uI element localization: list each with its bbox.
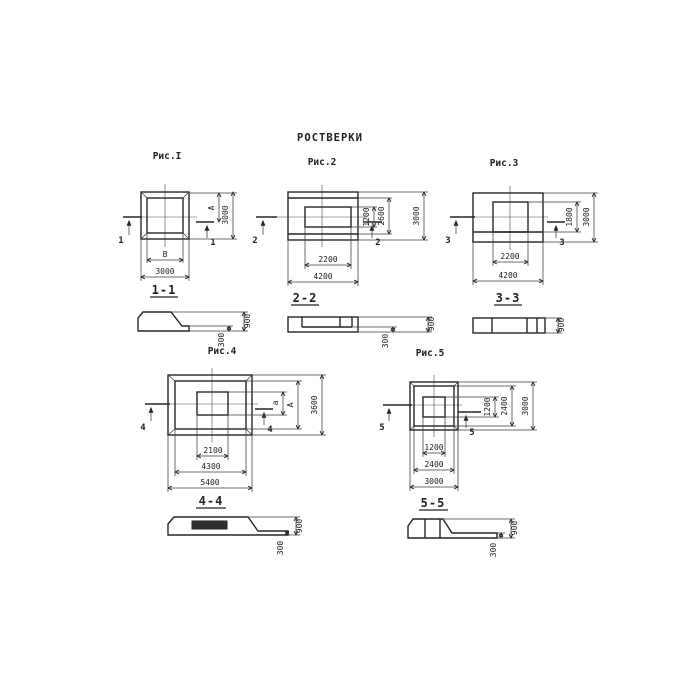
fig4-dim-inner-height: а xyxy=(271,400,280,405)
section-view-2-2: 900 300 xyxy=(288,317,436,349)
section2-dim-toe: 300 xyxy=(381,334,390,349)
sheet-title: РОСТВЕРКИ xyxy=(297,132,363,144)
fig3-cut-marker-right: 3 xyxy=(547,222,565,248)
fig3-dim-outer-height: 3000 xyxy=(582,207,591,226)
fig1-plan xyxy=(126,184,197,247)
fig4-cut-marker-right: 4 xyxy=(255,409,273,435)
fig4-label: Рис.4 xyxy=(208,346,237,357)
fig4-dimensions: а А 3600 2100 4300 5400 xyxy=(168,375,326,492)
bevel-line xyxy=(246,429,252,435)
bevel-line xyxy=(141,233,147,239)
fig3-cut-marker-left: 3 xyxy=(445,217,475,246)
section5-dim-height: 900 xyxy=(510,521,519,536)
fig4-section-label: 4-4 xyxy=(199,494,224,508)
bevel-line xyxy=(246,375,252,381)
section4-recess xyxy=(192,521,227,529)
section4-dim-height: 900 xyxy=(295,519,304,534)
fig1-label: Рис.I xyxy=(153,151,182,162)
fig5-dim-outer-height: 3000 xyxy=(521,396,530,415)
fig1-cut-marker-right: 1 xyxy=(196,222,216,248)
fig4-dim-mid-width: 4300 xyxy=(201,462,220,471)
section5-dim-toe: 300 xyxy=(489,543,498,558)
fig5-cut-number: 5 xyxy=(469,428,474,438)
section3-profile xyxy=(473,318,545,333)
fig2-dim-inner-width: 2200 xyxy=(318,255,337,264)
fig1-cut-number: 1 xyxy=(210,238,215,248)
grillage-drawing-sheet: РОСТВЕРКИ Рис.I 1 1 А xyxy=(0,0,700,700)
fig5-plan xyxy=(385,375,462,437)
fig2-label: Рис.2 xyxy=(308,157,337,168)
fig4-inner-contour xyxy=(197,392,228,415)
fig5-cut-marker-right: 5 xyxy=(458,412,481,438)
fig2-outer-contour xyxy=(288,192,358,240)
fig5-dim-outer-width: 3000 xyxy=(424,477,443,486)
bevel-line xyxy=(183,192,189,198)
fig4-dim-mid-height: А xyxy=(286,402,295,407)
fig4-dim-inner-width: 2100 xyxy=(203,446,222,455)
fig2-dim-outer-width: 4200 xyxy=(313,272,332,281)
fig2-cut-marker-left: 2 xyxy=(252,217,277,246)
fig4-cut-number: 4 xyxy=(267,425,273,435)
bevel-line xyxy=(168,429,175,435)
fig5-dim-inner-height: 1200 xyxy=(483,397,492,416)
fig5-section-label: 5-5 xyxy=(421,496,446,510)
fig5-cut-number: 5 xyxy=(379,423,384,433)
fig1-dim-inner-width: В xyxy=(163,250,168,259)
fig3-dimensions: 1800 3000 2200 4200 xyxy=(473,193,598,285)
fig2-dim-outer-height: 3000 xyxy=(412,206,421,225)
figure-1: Рис.I 1 1 А 3000 xyxy=(118,151,237,297)
fig1-dim-inner-height: А xyxy=(207,205,216,210)
section1-dim-height: 900 xyxy=(243,314,252,329)
fig1-dim-outer-height: 3000 xyxy=(221,205,230,224)
fig4-outer-contour xyxy=(168,375,252,435)
fig4-cut-marker-left: 4 xyxy=(140,404,170,433)
fig1-cut-marker-left: 1 xyxy=(118,217,142,246)
fig3-plan xyxy=(452,186,548,250)
fig3-cut-number: 3 xyxy=(559,238,564,248)
fig1-dim-outer-width: 3000 xyxy=(155,267,174,276)
section2-profile xyxy=(288,317,358,332)
fig2-cut-number: 2 xyxy=(375,238,380,248)
fig3-dim-inner-height: 1800 xyxy=(565,207,574,226)
fig4-mid-contour xyxy=(175,381,246,429)
fig4-dim-outer-height: 3600 xyxy=(310,395,319,414)
fig4-dim-outer-width: 5400 xyxy=(200,478,219,487)
section5-profile xyxy=(408,519,497,538)
fig3-label: Рис.3 xyxy=(490,158,519,169)
fig5-dim-mid-width: 2400 xyxy=(424,460,443,469)
section-view-1-1: 900 300 xyxy=(138,312,252,347)
figure-4: Рис.4 4 4 а xyxy=(140,346,326,508)
bevel-line xyxy=(141,192,147,198)
fig3-dim-inner-width: 2200 xyxy=(500,252,519,261)
fig2-dim-inner-height: 1200 xyxy=(362,207,371,226)
fig5-cut-marker-left: 5 xyxy=(379,405,412,433)
figure-2: Рис.2 2 2 1200 2600 xyxy=(252,157,428,305)
fig2-section-label: 2-2 xyxy=(293,291,318,305)
fig3-section-label: 3-3 xyxy=(496,291,521,305)
bevel-line xyxy=(183,233,189,239)
fig5-dim-inner-width: 1200 xyxy=(424,443,443,452)
section-view-5-5: 900 300 xyxy=(408,519,519,557)
section3-dim-height: 900 xyxy=(557,318,566,333)
section1-profile xyxy=(138,312,189,331)
fig2-dim-mid-height: 2600 xyxy=(377,206,386,225)
section4-profile xyxy=(168,517,288,535)
section-view-4-4: 900 300 xyxy=(168,517,304,555)
section2-dim-height: 900 xyxy=(427,317,436,332)
figure-3: Рис.3 3 3 1800 3000 xyxy=(445,158,598,305)
bevel-line xyxy=(168,375,175,381)
fig1-section-label: 1-1 xyxy=(152,283,177,297)
section-view-3-3: 900 xyxy=(473,318,566,333)
section4-dim-toe: 300 xyxy=(276,541,285,556)
fig3-outer-contour xyxy=(473,193,543,242)
fig3-dim-outer-width: 4200 xyxy=(498,271,517,280)
fig2-plan xyxy=(258,185,368,247)
fig5-label: Рис.5 xyxy=(416,348,445,359)
fig2-cut-number: 2 xyxy=(252,236,257,246)
fig1-cut-number: 1 xyxy=(118,236,123,246)
fig4-cut-number: 4 xyxy=(140,423,146,433)
fig4-plan xyxy=(147,368,258,442)
figure-5: Рис.5 5 5 1200 xyxy=(379,348,537,510)
fig3-cut-number: 3 xyxy=(445,236,450,246)
fig5-dim-mid-height: 2400 xyxy=(500,396,509,415)
